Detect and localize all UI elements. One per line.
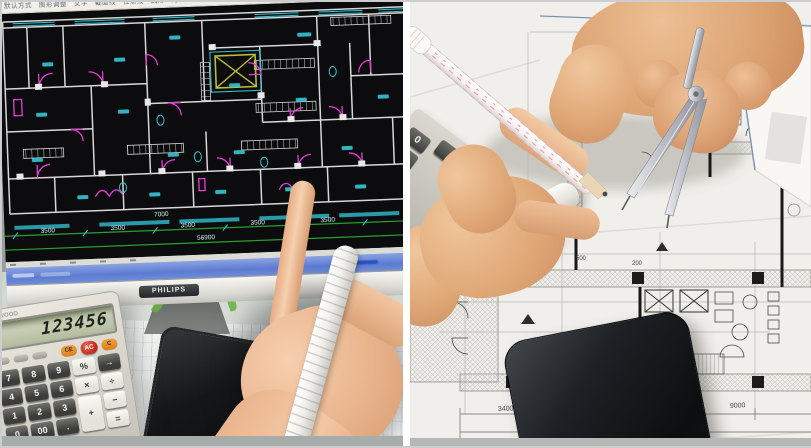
calculator-key: . xyxy=(55,417,80,436)
taskbar-start xyxy=(12,273,34,278)
cad-menu-item: 任意线 xyxy=(123,2,144,6)
taskbar-button xyxy=(40,272,70,277)
svg-text:3400: 3400 xyxy=(498,405,514,413)
calculator-key: + xyxy=(78,394,106,432)
calculator-key: 6 xyxy=(49,379,74,398)
cad-menu-item: 截面线 xyxy=(95,2,116,7)
calculator-key: % xyxy=(72,357,97,376)
cad-menu-item: 图形调整 xyxy=(39,2,67,9)
calculator-key-c: C xyxy=(101,338,119,351)
calculator-key: 4 xyxy=(2,387,24,406)
cad-menu-item: 隐藏标注 xyxy=(172,2,200,4)
svg-text:7000: 7000 xyxy=(154,211,169,219)
right-photo-blueprint: 3400 9000 30700 500 200 05162310 0 1 4 xyxy=(410,2,811,446)
calculator-key: − xyxy=(103,390,128,409)
calculator-key: 8 xyxy=(21,364,46,383)
cad-menu-item: 文字 xyxy=(74,2,88,7)
calculator-key: 2 xyxy=(27,402,52,421)
memory-key xyxy=(2,357,10,366)
calculator-key: ÷ xyxy=(100,371,125,390)
calculator-key: 9 xyxy=(46,361,71,380)
pointing-hand xyxy=(187,142,403,446)
hand-holding-compass xyxy=(506,2,811,181)
calculator-key: 3 xyxy=(52,398,77,417)
photo-composite: 默认方式 图形调整 文字 截面线 任意线 圆形 隐藏标注 标注设置 比例 文字查… xyxy=(0,0,811,448)
cad-menu-item: 默认方式 xyxy=(4,2,32,10)
svg-text:3500: 3500 xyxy=(110,225,125,233)
calculator-key: 5 xyxy=(24,383,49,402)
cad-menu-item: 圆形 xyxy=(151,2,165,4)
calculator-key: → xyxy=(97,353,122,372)
calculator-keypad: 7 8 9 % → 4 5 6 × ÷ 1 2 3 + − 0 00 . = xyxy=(2,353,130,444)
desk-edge xyxy=(2,436,403,446)
calculator-key: × xyxy=(75,375,100,394)
svg-text:3500: 3500 xyxy=(41,227,56,235)
table-edge xyxy=(410,438,811,446)
calculator-key: 1 xyxy=(2,406,27,425)
calculator-key: = xyxy=(106,409,131,428)
calculator-key-ce: CE xyxy=(60,344,78,357)
memory-key xyxy=(32,351,48,360)
left-photo-cad-monitor: 默认方式 图形调整 文字 截面线 任意线 圆形 隐藏标注 标注设置 比例 文字查… xyxy=(2,2,403,446)
svg-text:9000: 9000 xyxy=(730,402,746,410)
calculator-key: 7 xyxy=(2,368,21,387)
memory-key xyxy=(13,354,29,363)
svg-text:200: 200 xyxy=(632,261,643,267)
calculator-key-ac: AC xyxy=(80,340,99,355)
